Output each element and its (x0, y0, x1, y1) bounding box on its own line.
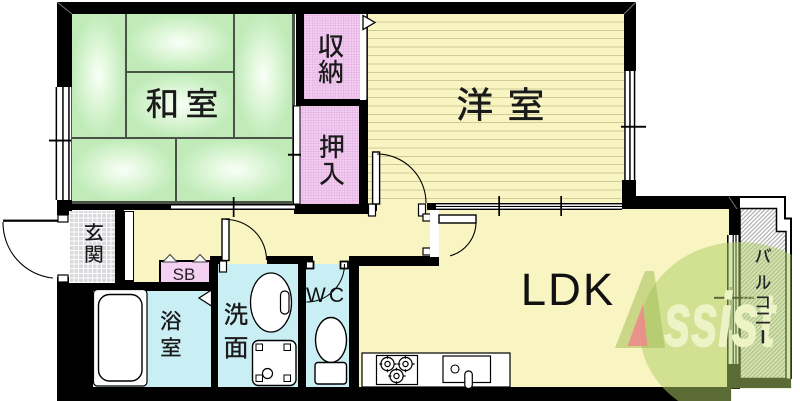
svg-text:LDK: LDK (521, 264, 616, 315)
svg-text:WC: WC (306, 284, 347, 307)
svg-text:ssist: ssist (664, 277, 777, 363)
svg-text:SB: SB (173, 265, 196, 284)
